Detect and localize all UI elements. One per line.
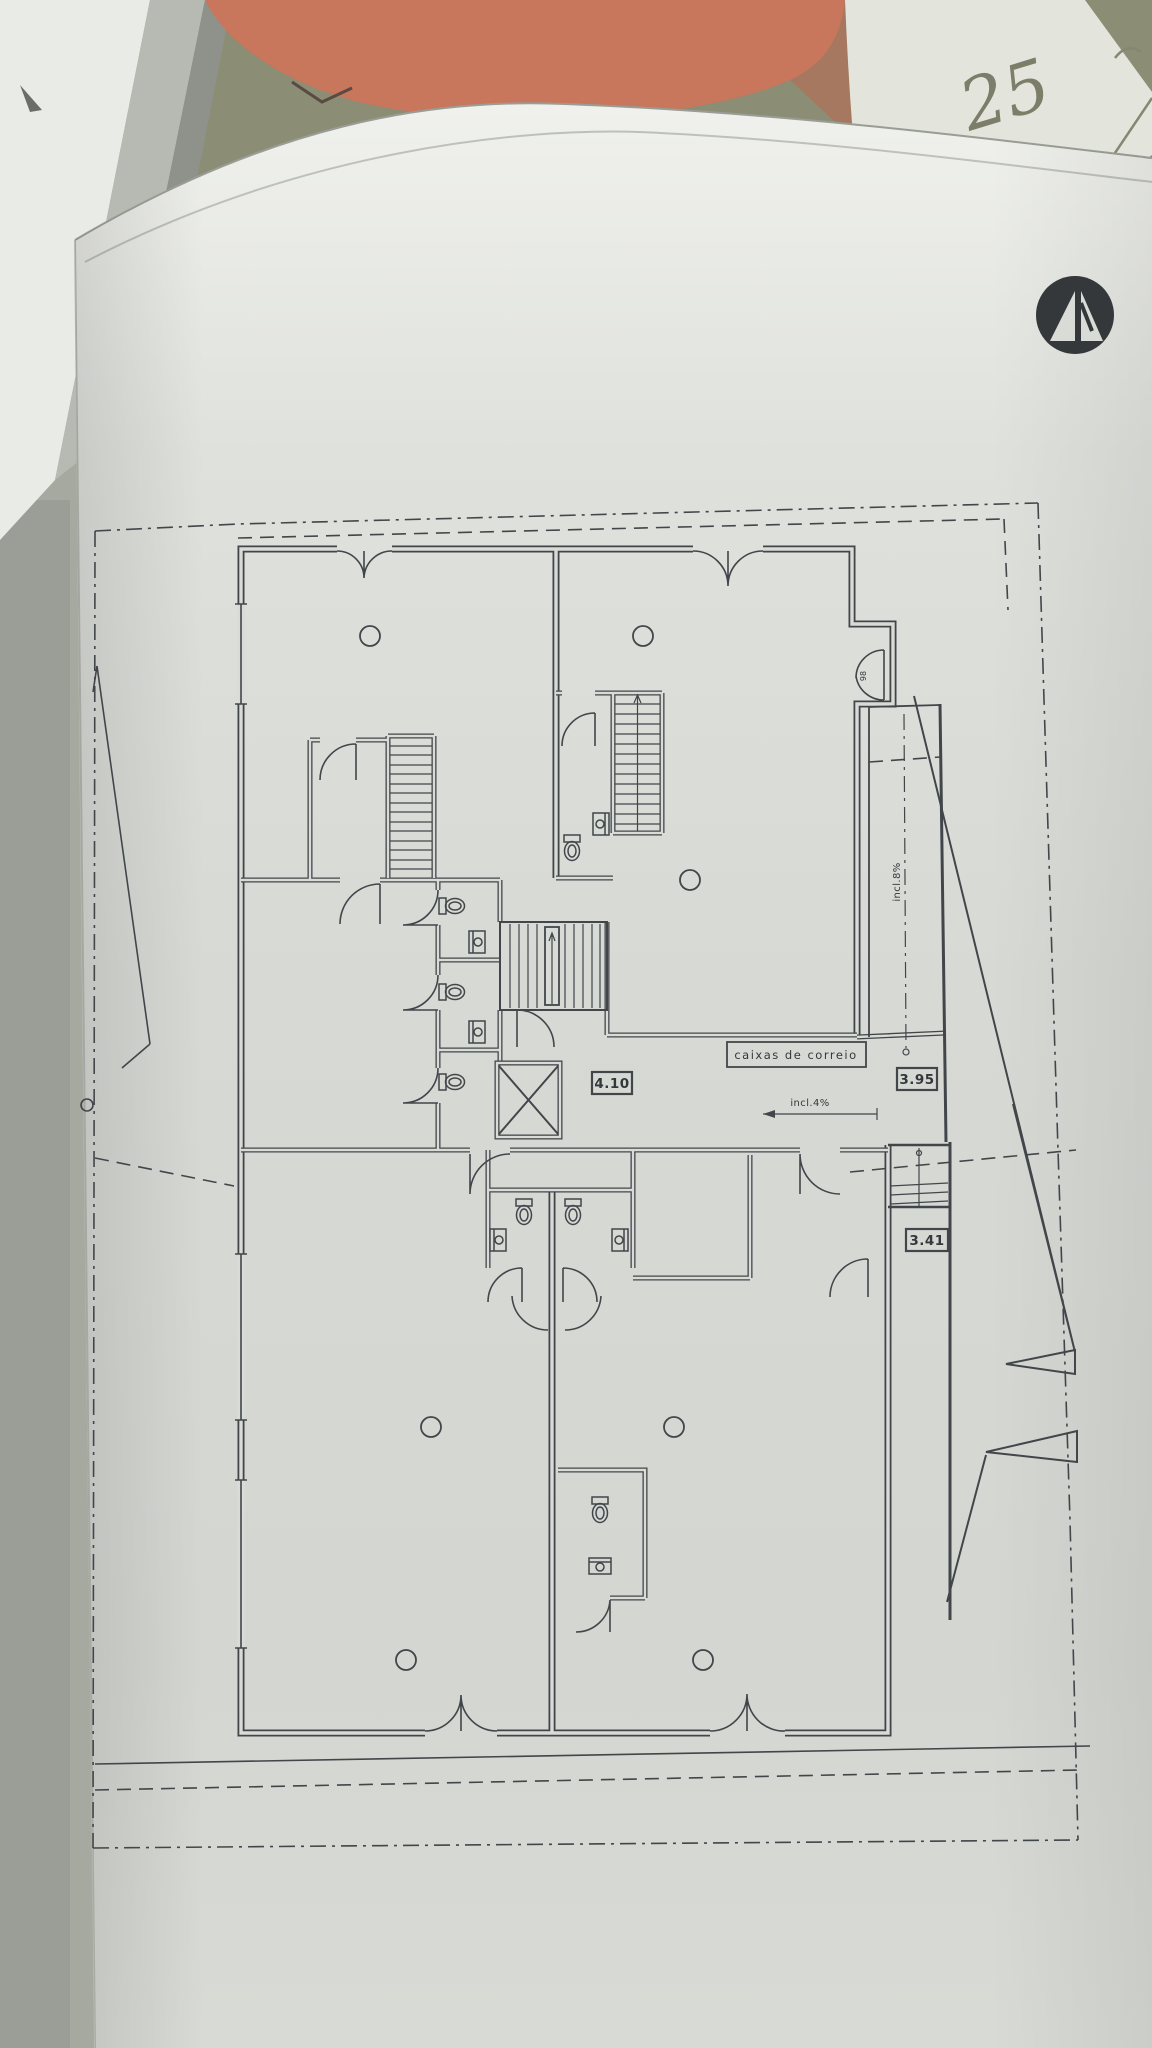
photo-of-floor-plan: 25 (0, 0, 1152, 2048)
mailboxes-label: caixas de correio (734, 1048, 857, 1062)
label-slope-horizontal: incl.4% (790, 1098, 829, 1109)
label-hall-width: 4.10 (592, 1072, 632, 1094)
label-slope-vertical: incl.8% (892, 862, 903, 901)
left-shadow-strip (0, 500, 70, 2048)
svg-text:4.10: 4.10 (594, 1076, 629, 1092)
label-ramp-lower: 3.41 (906, 1229, 948, 1251)
svg-text:3.41: 3.41 (909, 1233, 944, 1249)
label-ramp-upper: 3.95 (897, 1068, 937, 1090)
label-entrance-door: 98 (859, 671, 868, 681)
svg-text:3.95: 3.95 (899, 1072, 934, 1088)
architect-logo-icon (1036, 276, 1114, 354)
floor-plan-photo-svg: 25 (0, 0, 1152, 2048)
